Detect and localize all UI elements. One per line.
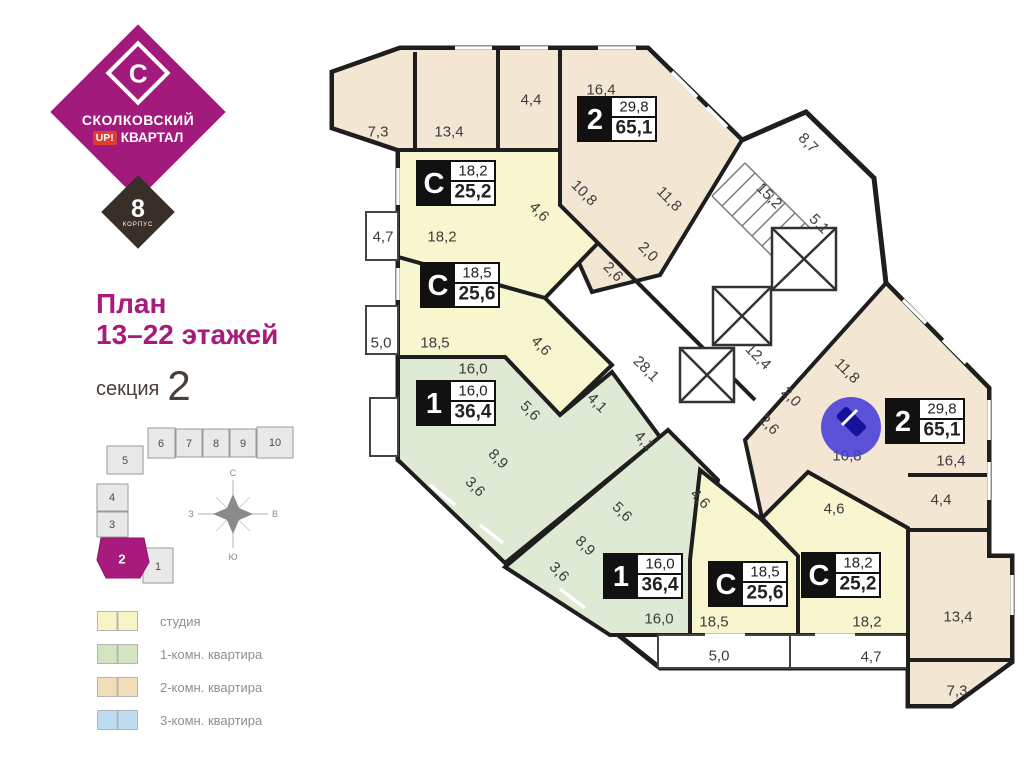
room-area-label: 7,3 bbox=[947, 683, 968, 700]
room-area-label: 4,7 bbox=[373, 229, 394, 246]
svg-text:25,6: 25,6 bbox=[747, 583, 784, 604]
brand-name-top: СКОЛКОВСКИЙ bbox=[56, 112, 220, 128]
brand-logo: С СКОЛКОВСКИЙ UP!КВАРТАЛ bbox=[50, 24, 225, 199]
apartment-badge[interactable]: С18,225,2 bbox=[417, 161, 495, 205]
apartment-badge[interactable]: 116,036,4 bbox=[417, 381, 495, 425]
room-area-label: 18,2 bbox=[852, 614, 881, 631]
room-area-label: 13,4 bbox=[943, 609, 972, 626]
svg-text:65,1: 65,1 bbox=[924, 420, 961, 441]
apartment-badge[interactable]: С18,525,6 bbox=[421, 263, 499, 307]
svg-text:С: С bbox=[716, 569, 737, 601]
room-area-label: 4,4 bbox=[931, 492, 952, 509]
up-badge: UP! bbox=[93, 131, 117, 145]
apartment-badge[interactable]: С18,525,6 bbox=[709, 562, 787, 606]
room-area-label: 16,0 bbox=[458, 361, 487, 378]
svg-text:1: 1 bbox=[426, 388, 442, 420]
apartment-badge[interactable]: 116,036,4 bbox=[604, 554, 682, 598]
room-area-label: 16,4 bbox=[936, 453, 965, 470]
building-number: 8 bbox=[131, 197, 145, 222]
svg-text:65,1: 65,1 bbox=[616, 118, 653, 139]
svg-text:18,2: 18,2 bbox=[458, 163, 487, 180]
room-area-label: 7,3 bbox=[368, 124, 389, 141]
room-area-label: 16,0 bbox=[644, 611, 673, 628]
room-area-label: 5,0 bbox=[709, 648, 730, 665]
cursor-indicator bbox=[821, 397, 881, 457]
room-area-label: 13,4 bbox=[434, 124, 463, 141]
room-area-label: 18,2 bbox=[427, 229, 456, 246]
svg-text:С: С bbox=[809, 560, 830, 592]
room-area-label: 18,5 bbox=[420, 335, 449, 352]
building-number-badge: 8 КОРПУС bbox=[101, 175, 175, 249]
room-area-label: 4,6 bbox=[824, 501, 845, 518]
svg-text:25,6: 25,6 bbox=[459, 284, 496, 305]
svg-text:29,8: 29,8 bbox=[619, 99, 648, 116]
apartment-badge[interactable]: 229,865,1 bbox=[578, 97, 656, 141]
svg-text:16,0: 16,0 bbox=[645, 556, 674, 573]
svg-text:16,0: 16,0 bbox=[458, 383, 487, 400]
brand-logo-icon: С bbox=[105, 40, 170, 105]
svg-text:18,2: 18,2 bbox=[843, 555, 872, 572]
svg-text:2: 2 bbox=[895, 406, 911, 438]
room-area-label: 18,5 bbox=[699, 614, 728, 631]
svg-text:С: С bbox=[424, 168, 445, 200]
apartment-badge[interactable]: 229,865,1 bbox=[886, 399, 964, 443]
floor-plan-page: С СКОЛКОВСКИЙ UP!КВАРТАЛ 8 КОРПУС План 1… bbox=[0, 0, 1024, 768]
room-area-label: 4,7 bbox=[861, 649, 882, 666]
svg-text:С: С bbox=[428, 270, 449, 302]
building-number-caption: КОРПУС bbox=[123, 222, 154, 228]
svg-text:18,5: 18,5 bbox=[462, 265, 491, 282]
svg-text:29,8: 29,8 bbox=[927, 401, 956, 418]
svg-text:36,4: 36,4 bbox=[642, 575, 679, 596]
svg-text:1: 1 bbox=[613, 561, 629, 593]
svg-text:25,2: 25,2 bbox=[840, 574, 877, 595]
room-area-label: 16,4 bbox=[586, 82, 615, 99]
svg-text:25,2: 25,2 bbox=[455, 182, 492, 203]
apartment-badge[interactable]: С18,225,2 bbox=[802, 553, 880, 597]
brand-name-bottom: UP!КВАРТАЛ bbox=[56, 130, 220, 145]
svg-text:2: 2 bbox=[587, 104, 603, 136]
room-area-label: 4,4 bbox=[521, 92, 542, 109]
svg-text:18,5: 18,5 bbox=[750, 564, 779, 581]
room-area-label: 5,0 bbox=[371, 335, 392, 352]
svg-text:36,4: 36,4 bbox=[455, 402, 492, 423]
